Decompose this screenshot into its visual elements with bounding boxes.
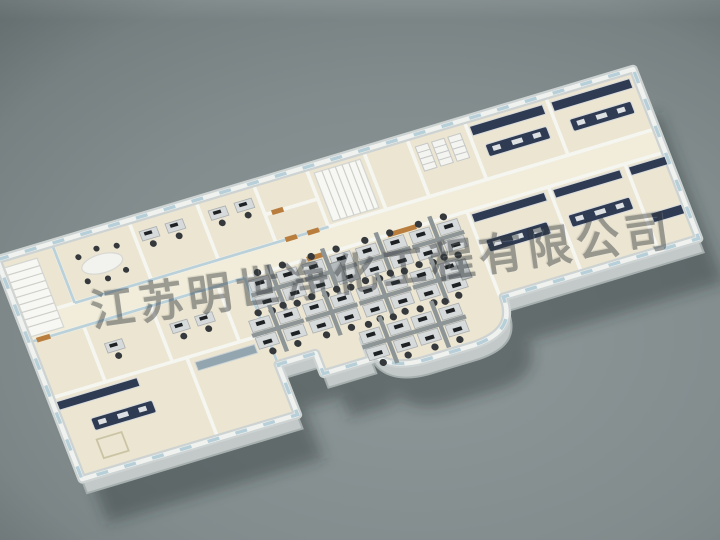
render-stage: 江苏明世净化工程有限公司 <box>0 0 720 540</box>
building-model <box>0 0 720 540</box>
